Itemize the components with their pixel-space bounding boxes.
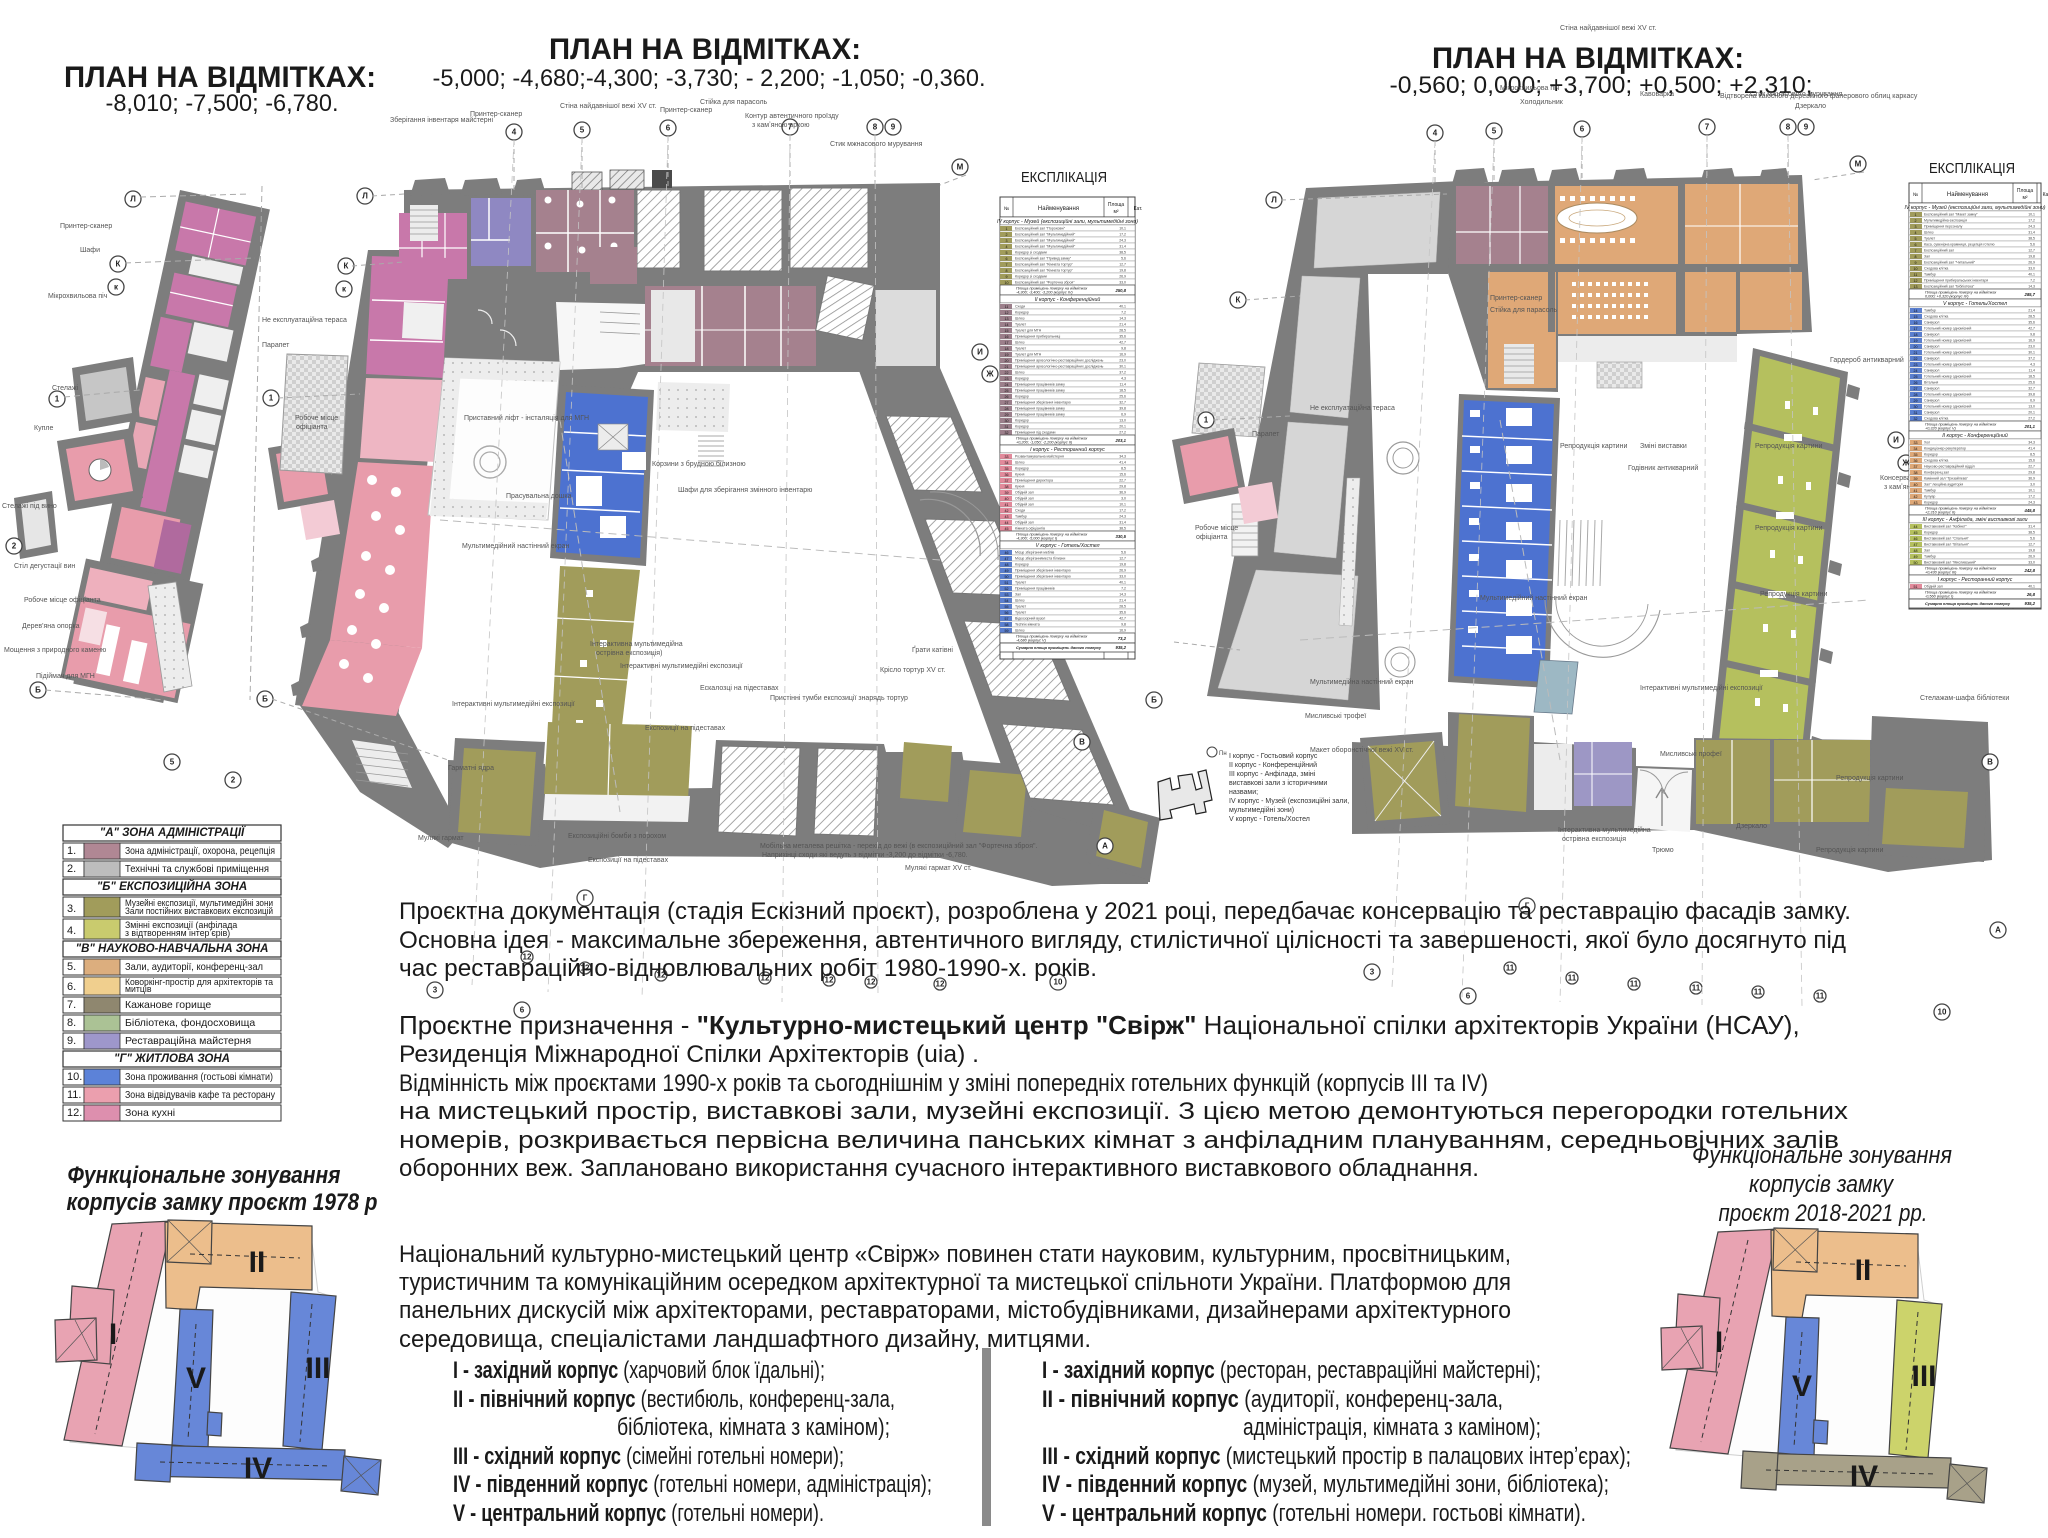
svg-text:Інтерактивні мультимедійні екс: Інтерактивні мультимедійні експозиції bbox=[452, 700, 575, 708]
svg-text:Зал: Зал bbox=[1924, 549, 1930, 553]
svg-text:50: 50 bbox=[1005, 575, 1009, 579]
svg-text:Коридор: Коридор bbox=[1015, 311, 1029, 315]
svg-text:12: 12 bbox=[1914, 279, 1918, 283]
svg-text:12.: 12. bbox=[67, 1107, 82, 1119]
svg-text:Санвузол: Санвузол bbox=[1924, 345, 1939, 349]
svg-text:26: 26 bbox=[1914, 381, 1918, 385]
svg-text:Експозиційний зал "Мультимедій: Експозиційний зал "Мультимедійний" bbox=[1015, 233, 1076, 237]
svg-text:Шлюз: Шлюз bbox=[1015, 599, 1025, 603]
svg-text:V - центральний корпус (готель: V - центральний корпус (готельні номери)… bbox=[453, 1500, 824, 1527]
svg-text:Туалет: Туалет bbox=[1924, 237, 1935, 241]
svg-text:16,9: 16,9 bbox=[1119, 629, 1126, 633]
svg-text:3: 3 bbox=[433, 986, 438, 995]
svg-text:73,2: 73,2 bbox=[1118, 636, 1127, 641]
svg-text:7.: 7. bbox=[67, 999, 76, 1011]
svg-text:Камінний зал "Гризайлева": Камінний зал "Гризайлева" bbox=[1924, 477, 1969, 481]
svg-text:29: 29 bbox=[1914, 399, 1918, 403]
svg-text:33,0: 33,0 bbox=[1119, 575, 1126, 579]
svg-text:16,9: 16,9 bbox=[2028, 339, 2035, 343]
svg-text:К: К bbox=[344, 262, 349, 271]
svg-text:час реставраційно-відновлюваль: час реставраційно-відновлювальних робіт … bbox=[399, 955, 1097, 982]
svg-text:Ґрати катівні: Ґрати катівні bbox=[912, 645, 953, 654]
svg-text:30,1: 30,1 bbox=[1119, 365, 1126, 369]
svg-text:19,8: 19,8 bbox=[1119, 269, 1126, 273]
svg-text:24,3: 24,3 bbox=[1119, 515, 1126, 519]
svg-text:м²: м² bbox=[1113, 209, 1118, 215]
svg-text:11: 11 bbox=[1568, 974, 1577, 983]
svg-text:10,1: 10,1 bbox=[1119, 503, 1126, 507]
svg-text:К: К bbox=[116, 260, 121, 269]
svg-text:22: 22 bbox=[1005, 371, 1009, 375]
svg-text:5,6: 5,6 bbox=[2030, 537, 2035, 541]
svg-text:Експозиційний зал "Кімната тор: Експозиційний зал "Кімната тортур" bbox=[1015, 269, 1074, 273]
svg-text:30: 30 bbox=[1914, 405, 1918, 409]
svg-text:12: 12 bbox=[1005, 311, 1009, 315]
svg-text:Основна ідея - максимальне збе: Основна ідея - максимальне збереження, а… bbox=[399, 927, 1846, 954]
svg-text:ІV корпус - Музей (експозиційн: ІV корпус - Музей (експозиційні зали, му… bbox=[1905, 204, 2046, 211]
svg-text:34,3: 34,3 bbox=[1119, 455, 1126, 459]
svg-text:23,0: 23,0 bbox=[1119, 359, 1126, 363]
svg-text:Сходи: Сходи bbox=[1015, 509, 1025, 513]
svg-text:23: 23 bbox=[1914, 363, 1918, 367]
svg-text:Виставковий зал "Спальня": Виставковий зал "Спальня" bbox=[1924, 537, 1970, 541]
svg-text:41: 41 bbox=[1914, 489, 1918, 493]
svg-text:39: 39 bbox=[1005, 491, 1009, 495]
svg-text:9: 9 bbox=[1915, 261, 1917, 265]
svg-text:34: 34 bbox=[1005, 461, 1009, 465]
svg-text:Технічні та службові приміщенн: Технічні та службові приміщення bbox=[125, 863, 269, 875]
svg-text:7,2: 7,2 bbox=[1121, 587, 1126, 591]
svg-text:острівна експозиція: острівна експозиція bbox=[1562, 835, 1626, 843]
svg-text:Дерев'яна опорка: Дерев'яна опорка bbox=[22, 623, 80, 630]
svg-text:37,2: 37,2 bbox=[1119, 371, 1126, 375]
svg-text:офіціанта: офіціанта bbox=[296, 423, 328, 431]
svg-text:Тамбур: Тамбур bbox=[1924, 273, 1936, 277]
svg-text:29: 29 bbox=[1005, 413, 1009, 417]
svg-text:"Б" ЕКСПОЗИЦІЙНА ЗОНА: "Б" ЕКСПОЗИЦІЙНА ЗОНА bbox=[97, 880, 247, 893]
svg-text:Туалет для МГН: Туалет для МГН bbox=[1015, 353, 1042, 357]
svg-text:Бібліотека, фондосховища: Бібліотека, фондосховища bbox=[125, 1017, 255, 1029]
svg-text:7: 7 bbox=[1705, 123, 1710, 132]
svg-text:Дзеркало: Дзеркало bbox=[1736, 823, 1767, 830]
svg-text:37,2: 37,2 bbox=[2028, 357, 2035, 361]
svg-text:10: 10 bbox=[1938, 1008, 1947, 1017]
svg-text:17,2: 17,2 bbox=[1119, 509, 1126, 513]
svg-text:Л: Л bbox=[130, 195, 136, 204]
svg-text:22,7: 22,7 bbox=[1119, 479, 1126, 483]
svg-text:Приміщення археологічно-рестав: Приміщення археологічно-реставраційних д… bbox=[1015, 359, 1104, 363]
svg-text:24: 24 bbox=[1005, 383, 1009, 387]
svg-text:Приміщення зберігання інвентар: Приміщення зберігання інвентарю bbox=[1015, 401, 1071, 405]
svg-text:35: 35 bbox=[1005, 467, 1009, 471]
svg-text:4,3: 4,3 bbox=[2030, 363, 2035, 367]
svg-text:Інтерактивні мультимедійні екс: Інтерактивні мультимедійні експозиції bbox=[1640, 684, 1763, 692]
svg-text:Готельний номер одномісний: Готельний номер одномісний bbox=[1924, 327, 1971, 331]
svg-text:ІV корпус - Музей (експозиційн: ІV корпус - Музей (експозиційні зали, bbox=[1229, 797, 1349, 805]
svg-text:з камʼяною аркою: з камʼяною аркою bbox=[752, 121, 809, 129]
svg-text:26,9: 26,9 bbox=[2028, 261, 2035, 265]
svg-text:1: 1 bbox=[1915, 213, 1917, 217]
svg-text:Резиденція Міжнародної Спілки: Резиденція Міжнародної Спілки Архітектор… bbox=[399, 1041, 979, 1068]
svg-text:201,1: 201,1 bbox=[2024, 424, 2036, 429]
svg-text:Приміщення зберігання інвентар: Приміщення зберігання інвентарю bbox=[1015, 575, 1071, 579]
svg-text:17: 17 bbox=[1005, 341, 1009, 345]
svg-text:12,7: 12,7 bbox=[2028, 543, 2035, 547]
svg-text:Експозиційний зал "Привид замк: Експозиційний зал "Привид замку" bbox=[1015, 257, 1072, 261]
svg-text:17,2: 17,2 bbox=[2028, 219, 2035, 223]
svg-text:18: 18 bbox=[1005, 347, 1009, 351]
svg-text:28,5: 28,5 bbox=[2028, 315, 2035, 319]
svg-text:1.: 1. bbox=[67, 845, 76, 857]
svg-text:ЕКСПЛІКАЦІЯ: ЕКСПЛІКАЦІЯ bbox=[1021, 169, 1107, 186]
svg-text:23,0: 23,0 bbox=[2028, 345, 2035, 349]
svg-text:ІІІ - східний корпус (мистецьк: ІІІ - східний корпус (мистецький простір… bbox=[1042, 1443, 1631, 1470]
svg-text:1: 1 bbox=[1006, 227, 1008, 231]
svg-text:45: 45 bbox=[1914, 531, 1918, 535]
svg-text:31: 31 bbox=[1914, 411, 1918, 415]
svg-text:І - західний корпус (харчовий: І - західний корпус (харчовий блок їдаль… bbox=[453, 1357, 825, 1384]
svg-text:9,8: 9,8 bbox=[1121, 623, 1126, 627]
svg-text:28: 28 bbox=[1005, 407, 1009, 411]
svg-text:ІІ - північний корпус (аудитор: ІІ - північний корпус (аудиторії, конфер… bbox=[1042, 1386, 1503, 1413]
svg-text:50: 50 bbox=[1914, 561, 1918, 565]
svg-text:42,7: 42,7 bbox=[1119, 341, 1126, 345]
svg-text:6: 6 bbox=[1915, 243, 1917, 247]
svg-text:32,7: 32,7 bbox=[2028, 387, 2035, 391]
svg-text:53: 53 bbox=[1005, 593, 1009, 597]
svg-text:Туалет для МГН: Туалет для МГН bbox=[1015, 329, 1042, 333]
svg-text:11: 11 bbox=[1754, 988, 1763, 997]
svg-text:18: 18 bbox=[1914, 333, 1918, 337]
svg-text:34: 34 bbox=[1914, 447, 1918, 451]
svg-text:43: 43 bbox=[1005, 515, 1009, 519]
svg-text:445,8: 445,8 bbox=[2024, 508, 2036, 513]
svg-text:17: 17 bbox=[1914, 327, 1918, 331]
svg-text:40,1: 40,1 bbox=[1119, 581, 1126, 585]
svg-text:6.: 6. bbox=[67, 981, 76, 993]
svg-text:Робоче місце: Робоче місце bbox=[1195, 524, 1238, 532]
svg-text:31,4: 31,4 bbox=[2028, 231, 2035, 235]
svg-text:Санвузол: Санвузол bbox=[1924, 387, 1939, 391]
svg-text:Приміщення працівників замку: Приміщення працівників замку bbox=[1015, 383, 1065, 387]
svg-text:Мулякі гармат XV ст.: Мулякі гармат XV ст. bbox=[905, 864, 972, 872]
svg-text:Туалет: Туалет bbox=[1015, 611, 1026, 615]
svg-text:Експозиційний зал "Мультимеді: Експозиційний зал "Мультимедійний" bbox=[1015, 239, 1076, 243]
svg-text:Корзини з брудною білизною: Корзини з брудною білизною bbox=[652, 460, 746, 468]
svg-text:+2,310 (корпус ІІ): +2,310 (корпус ІІ) bbox=[1925, 511, 1956, 515]
svg-text:Експозиційний зал "Бібліотека": Експозиційний зал "Бібліотека" bbox=[1924, 285, 1975, 289]
svg-text:Функціональне зонування: Функціональне зонування bbox=[1692, 1142, 1952, 1169]
svg-text:Виставковий зал "Вітальня": Виставковий зал "Вітальня" bbox=[1924, 543, 1970, 547]
svg-text:Приміщення працівників замку: Приміщення працівників замку bbox=[1015, 389, 1065, 393]
svg-text:16,9: 16,9 bbox=[1119, 353, 1126, 357]
svg-text:51: 51 bbox=[1005, 581, 1009, 585]
svg-text:ІІ корпус - Конференційний: ІІ корпус - Конференційний bbox=[1035, 296, 1101, 303]
svg-text:Найменування: Найменування bbox=[1947, 191, 1988, 198]
svg-text:47: 47 bbox=[1005, 557, 1009, 561]
svg-text:ПЛАН НА ВІДМІТКАХ:: ПЛАН НА ВІДМІТКАХ: bbox=[549, 33, 861, 66]
svg-text:11: 11 bbox=[1914, 273, 1918, 277]
svg-text:Відтворена каюсного деревйного: Відтворена каюсного деревйного фанеровог… bbox=[1720, 92, 1918, 100]
svg-text:25: 25 bbox=[1914, 375, 1918, 379]
svg-text:Реставраційна майстерня: Реставраційна майстерня bbox=[125, 1035, 251, 1047]
svg-text:Б: Б bbox=[262, 695, 268, 704]
svg-text:5,6: 5,6 bbox=[1121, 257, 1126, 261]
svg-text:41,4: 41,4 bbox=[1119, 461, 1126, 465]
svg-text:43: 43 bbox=[1914, 501, 1918, 505]
svg-text:Мисливські трофеї: Мисливські трофеї bbox=[1305, 712, 1366, 720]
svg-text:Площа: Площа bbox=[1108, 202, 1124, 208]
svg-text:Зона відвідувачів кафе та рест: Зона відвідувачів кафе та ресторану bbox=[125, 1089, 276, 1101]
svg-text:24,3: 24,3 bbox=[2028, 225, 2035, 229]
svg-text:Репродукція картини: Репродукція картини bbox=[1816, 846, 1883, 854]
svg-text:42,7: 42,7 bbox=[2028, 327, 2035, 331]
svg-text:Обідній зал: Обідній зал bbox=[1015, 497, 1034, 501]
svg-text:9: 9 bbox=[1006, 275, 1008, 279]
svg-text:митців: митців bbox=[125, 984, 152, 994]
svg-text:935,2: 935,2 bbox=[1116, 645, 1127, 650]
svg-text:ІV - південний корпус (музей,: ІV - південний корпус (музей, мультимеді… bbox=[1042, 1471, 1609, 1498]
svg-text:V - центральний корпус (готель: V - центральний корпус (готельні номери.… bbox=[1042, 1500, 1586, 1527]
svg-text:44: 44 bbox=[1005, 521, 1009, 525]
svg-text:Мисливські профеї: Мисливські профеї bbox=[1660, 750, 1722, 758]
svg-text:Сходова клітка: Сходова клітка bbox=[1924, 267, 1948, 271]
svg-text:40: 40 bbox=[1914, 483, 1918, 487]
svg-text:47: 47 bbox=[1914, 543, 1918, 547]
svg-text:И: И bbox=[977, 348, 983, 357]
svg-text:19,8: 19,8 bbox=[2028, 549, 2035, 553]
svg-text:Виставковий зал "Мисливський": Виставковий зал "Мисливський" bbox=[1924, 561, 1977, 565]
svg-text:ПЛАН НА ВІДМІТКАХ:: ПЛАН НА ВІДМІТКАХ: bbox=[1432, 42, 1744, 75]
svg-text:з відтворенням інтерʼєрів): з відтворенням інтерʼєрів) bbox=[125, 928, 230, 938]
svg-text:ІІ: ІІ bbox=[249, 1246, 266, 1279]
svg-text:56: 56 bbox=[1005, 611, 1009, 615]
svg-text:Принтер-сканер: Принтер-сканер bbox=[470, 111, 522, 118]
svg-text:Кондиціонер-рекуператор: Кондиціонер-рекуператор bbox=[1924, 447, 1966, 451]
svg-text:Приміщення прибиральських інве: Приміщення прибиральських інвентаря bbox=[1924, 279, 1988, 283]
svg-text:38,5: 38,5 bbox=[1119, 251, 1126, 255]
svg-text:Зали постійних виставкових екс: Зали постійних виставкових експозицій bbox=[125, 906, 273, 916]
svg-text:10,1: 10,1 bbox=[2028, 213, 2035, 217]
svg-text:11: 11 bbox=[1506, 964, 1515, 973]
svg-text:54: 54 bbox=[1005, 599, 1009, 603]
svg-text:42: 42 bbox=[1005, 509, 1009, 513]
svg-text:45: 45 bbox=[1005, 527, 1009, 531]
svg-text:V корпус - Готель/Хостел: V корпус - Готель/Хостел bbox=[1035, 543, 1099, 549]
svg-text:Найменування: Найменування bbox=[1038, 205, 1079, 212]
svg-text:Шафи для зберігання змінного і: Шафи для зберігання змінного інвентарю bbox=[678, 486, 812, 494]
svg-text:3.: 3. bbox=[67, 903, 76, 915]
svg-text:Готельний номер одномісний: Готельний номер одномісний bbox=[1924, 375, 1971, 379]
svg-text:Б: Б bbox=[35, 686, 41, 695]
svg-text:ІІІ: ІІІ bbox=[1911, 1360, 1936, 1393]
svg-text:Мультимедійний настінний екран: Мультимедійний настінний екран bbox=[462, 542, 570, 550]
svg-text:8: 8 bbox=[873, 123, 878, 132]
svg-text:28,5: 28,5 bbox=[1119, 605, 1126, 609]
svg-text:2: 2 bbox=[1006, 233, 1008, 237]
svg-text:Санвузол: Санвузол bbox=[1924, 411, 1939, 415]
svg-text:11: 11 bbox=[1630, 980, 1639, 989]
svg-text:Науково-реставраційний відділ: Науково-реставраційний відділ bbox=[1924, 465, 1975, 469]
svg-text:острівна експозиція): острівна експозиція) bbox=[596, 649, 662, 657]
svg-text:Національний культурно-мистець: Національний культурно-мистецький центр … bbox=[399, 1241, 1511, 1268]
svg-text:28: 28 bbox=[1914, 393, 1918, 397]
svg-text:30: 30 bbox=[1005, 419, 1009, 423]
svg-text:номерів, розкривається первісн: номерів, розкривається первісна величина… bbox=[399, 1127, 1839, 1154]
svg-text:ІІ: ІІ bbox=[1855, 1254, 1872, 1287]
svg-text:32: 32 bbox=[1914, 417, 1918, 421]
svg-text:Інтерактивна мультимедійна: Інтерактивна мультимедійна bbox=[590, 640, 683, 648]
svg-text:8,5: 8,5 bbox=[1121, 467, 1126, 471]
svg-text:Ж: Ж bbox=[985, 370, 994, 379]
svg-text:Technік кімната: Technік кімната bbox=[1015, 623, 1040, 627]
svg-text:17,2: 17,2 bbox=[1119, 233, 1126, 237]
svg-text:8: 8 bbox=[1786, 123, 1791, 132]
svg-text:25,6: 25,6 bbox=[1119, 395, 1126, 399]
svg-text:Тамбур: Тамбур bbox=[1924, 555, 1936, 559]
svg-text:33,0: 33,0 bbox=[2028, 561, 2035, 565]
svg-text:V: V bbox=[186, 1362, 206, 1395]
svg-text:36: 36 bbox=[1914, 459, 1918, 463]
svg-text:Робоче місце офіціанта: Робоче місце офіціанта bbox=[24, 596, 101, 604]
svg-text:17,2: 17,2 bbox=[2028, 495, 2035, 499]
svg-text:І: І bbox=[109, 1318, 117, 1351]
svg-text:В: В bbox=[1079, 738, 1085, 747]
svg-text:12,7: 12,7 bbox=[1119, 263, 1126, 267]
svg-text:-8,010; -7,500; -6,780.: -8,010; -7,500; -6,780. bbox=[106, 90, 339, 117]
svg-text:6: 6 bbox=[1466, 992, 1471, 1001]
svg-text:Зона адміністрації, охорона, р: Зона адміністрації, охорона, рецепція bbox=[125, 845, 275, 857]
svg-text:24: 24 bbox=[1914, 369, 1918, 373]
svg-text:19: 19 bbox=[1914, 339, 1918, 343]
svg-text:Санвузол: Санвузол bbox=[1924, 357, 1939, 361]
svg-text:+0,200; -1,050; -2,200 (корпу: +0,200; -1,050; -2,200 (корпус ІІ) bbox=[1016, 441, 1073, 445]
svg-text:38,5: 38,5 bbox=[2028, 531, 2035, 535]
svg-text:29,8: 29,8 bbox=[1119, 485, 1126, 489]
svg-text:ІІІ корпус - Анфілада, зміні: ІІІ корпус - Анфілада, зміні bbox=[1229, 770, 1316, 778]
svg-text:Експозиційний зал "Фортечна зб: Експозиційний зал "Фортечна зброя" bbox=[1015, 281, 1075, 285]
svg-text:24,3: 24,3 bbox=[2028, 501, 2035, 505]
svg-text:40,1: 40,1 bbox=[2028, 273, 2035, 277]
svg-text:39,8: 39,8 bbox=[2028, 393, 2035, 397]
svg-text:Санвузол: Санвузол bbox=[1924, 399, 1939, 403]
svg-text:назвами;: назвами; bbox=[1229, 789, 1258, 796]
svg-text:туристичним та комунікаційним: туристичним та комунікаційним осередком … bbox=[399, 1269, 1511, 1296]
svg-text:И: И bbox=[1893, 436, 1899, 445]
svg-text:36: 36 bbox=[1005, 473, 1009, 477]
svg-text:35,6: 35,6 bbox=[1119, 611, 1126, 615]
svg-text:Принтер-сканер: Принтер-сканер bbox=[1490, 295, 1542, 302]
svg-text:21,4: 21,4 bbox=[1119, 323, 1126, 327]
svg-text:Приміщення директора: Приміщення директора bbox=[1015, 479, 1053, 483]
svg-text:Приміщення археологічно-рестав: Приміщення археологічно-реставраційних д… bbox=[1015, 365, 1104, 369]
svg-text:Кімната офіціантів: Кімната офіціантів bbox=[1015, 527, 1045, 531]
svg-text:корпусів замку: корпусів замку bbox=[1749, 1171, 1895, 1198]
svg-text:11,4: 11,4 bbox=[1119, 383, 1126, 387]
svg-text:40,1: 40,1 bbox=[2028, 585, 2035, 589]
svg-text:48: 48 bbox=[1005, 563, 1009, 567]
svg-text:14: 14 bbox=[1005, 323, 1009, 327]
svg-text:Зміні виставки: Зміні виставки bbox=[1640, 442, 1687, 450]
svg-text:Розвантажувальна майстерня: Розвантажувальна майстерня bbox=[1015, 455, 1064, 459]
svg-text:Гарматні ядра: Гарматні ядра bbox=[448, 764, 494, 772]
svg-text:Крісло тортур XV ст.: Крісло тортур XV ст. bbox=[880, 666, 946, 674]
svg-text:І корпус - Ресторанний корпус: І корпус - Ресторанний корпус bbox=[1938, 576, 2013, 583]
svg-text:Пн: Пн bbox=[1219, 751, 1227, 757]
svg-text:-4,300; -5,000 (корпус І): -4,300; -5,000 (корпус І) bbox=[1016, 537, 1058, 541]
svg-text:Санвузол: Санвузол bbox=[1924, 321, 1939, 325]
svg-text:Готельний номер одномісний: Готельний номер одномісний bbox=[1924, 363, 1971, 367]
svg-text:Експозиції на підеставах: Експозиції на підеставах bbox=[588, 856, 669, 864]
svg-text:29,8: 29,8 bbox=[2028, 471, 2035, 475]
svg-text:м²: м² bbox=[2022, 195, 2027, 201]
svg-text:Коридор: Коридор bbox=[1015, 425, 1029, 429]
svg-text:36,9: 36,9 bbox=[2028, 477, 2035, 481]
svg-text:7,2: 7,2 bbox=[2030, 279, 2035, 283]
svg-text:Пристінні тумби експозиції зн: Пристінні тумби експозиції знарядь торту… bbox=[770, 694, 908, 702]
svg-text:6,9: 6,9 bbox=[2030, 399, 2035, 403]
svg-text:19: 19 bbox=[1005, 353, 1009, 357]
svg-text:ІІІ: ІІІ bbox=[305, 1352, 330, 1385]
svg-text:І: І bbox=[1715, 1326, 1723, 1359]
svg-text:Проєктна документація (стадія: Проєктна документація (стадія Ескізний п… bbox=[399, 898, 1851, 925]
svg-text:37: 37 bbox=[1914, 465, 1918, 469]
svg-text:39,8: 39,8 bbox=[1119, 407, 1126, 411]
svg-text:Туалет: Туалет bbox=[1015, 581, 1026, 585]
svg-text:Принтер-сканер: Принтер-сканер bbox=[60, 223, 112, 230]
svg-text:21,4: 21,4 bbox=[2028, 309, 2035, 313]
svg-text:12,7: 12,7 bbox=[1119, 557, 1126, 561]
svg-text:Готельний номер одномісний: Готельний номер одномісний bbox=[1924, 339, 1971, 343]
svg-text:Коридор зі сходами: Коридор зі сходами bbox=[1015, 275, 1047, 279]
svg-text:15: 15 bbox=[1005, 329, 1009, 333]
svg-text:Коридор: Коридор bbox=[1015, 419, 1029, 423]
svg-text:Купле: Купле bbox=[34, 425, 53, 432]
svg-text:Ескалозці на підеставах: Ескалозці на підеставах bbox=[700, 684, 779, 692]
svg-text:31,4: 31,4 bbox=[1119, 521, 1126, 525]
svg-text:Б: Б bbox=[1151, 696, 1157, 705]
svg-text:Зал: Зал bbox=[1015, 593, 1021, 597]
svg-text:15: 15 bbox=[1914, 315, 1918, 319]
svg-text:3: 3 bbox=[1006, 239, 1008, 243]
svg-text:Функціональне зонування: Функціональне зонування bbox=[68, 1162, 341, 1189]
svg-text:2: 2 bbox=[1915, 219, 1917, 223]
svg-text:42: 42 bbox=[1914, 495, 1918, 499]
svg-text:6: 6 bbox=[1580, 125, 1585, 134]
svg-text:10: 10 bbox=[1005, 281, 1009, 285]
svg-text:41: 41 bbox=[1005, 503, 1009, 507]
svg-text:ЕКСПЛІКАЦІЯ: ЕКСПЛІКАЦІЯ bbox=[1929, 160, 2015, 177]
svg-text:203,1: 203,1 bbox=[1115, 438, 1127, 443]
svg-text:Хол: Хол bbox=[1924, 441, 1930, 445]
svg-text:36,9: 36,9 bbox=[1119, 491, 1126, 495]
svg-text:Кухня: Кухня bbox=[1015, 473, 1024, 477]
svg-text:27: 27 bbox=[1914, 387, 1918, 391]
svg-text:9.: 9. bbox=[67, 1035, 76, 1047]
svg-text:11: 11 bbox=[1692, 984, 1701, 993]
svg-text:бібліотека, кімната з каміном): бібліотека, кімната з каміном); bbox=[617, 1414, 890, 1441]
svg-text:16: 16 bbox=[1005, 335, 1009, 339]
svg-text:25: 25 bbox=[1005, 389, 1009, 393]
svg-text:1: 1 bbox=[55, 395, 60, 404]
svg-text:виставкові зали з історичними: виставкові зали з історичними bbox=[1229, 779, 1327, 787]
svg-text:Мультимедійна настінний екран: Мультимедійна настінний екран bbox=[1310, 678, 1414, 686]
svg-text:19,8: 19,8 bbox=[1119, 563, 1126, 567]
svg-text:Стіна найдавнішої вежі XV ст.: Стіна найдавнішої вежі XV ст. bbox=[1560, 24, 1657, 32]
svg-text:V корпус - Готель/Хостел: V корпус - Готель/Хостел bbox=[1943, 301, 2007, 307]
svg-text:Приміщення працівників замку: Приміщення працівників замку bbox=[1015, 407, 1065, 411]
svg-text:+0,430 (корпус ІІІ): +0,430 (корпус ІІІ) bbox=[1925, 571, 1957, 575]
